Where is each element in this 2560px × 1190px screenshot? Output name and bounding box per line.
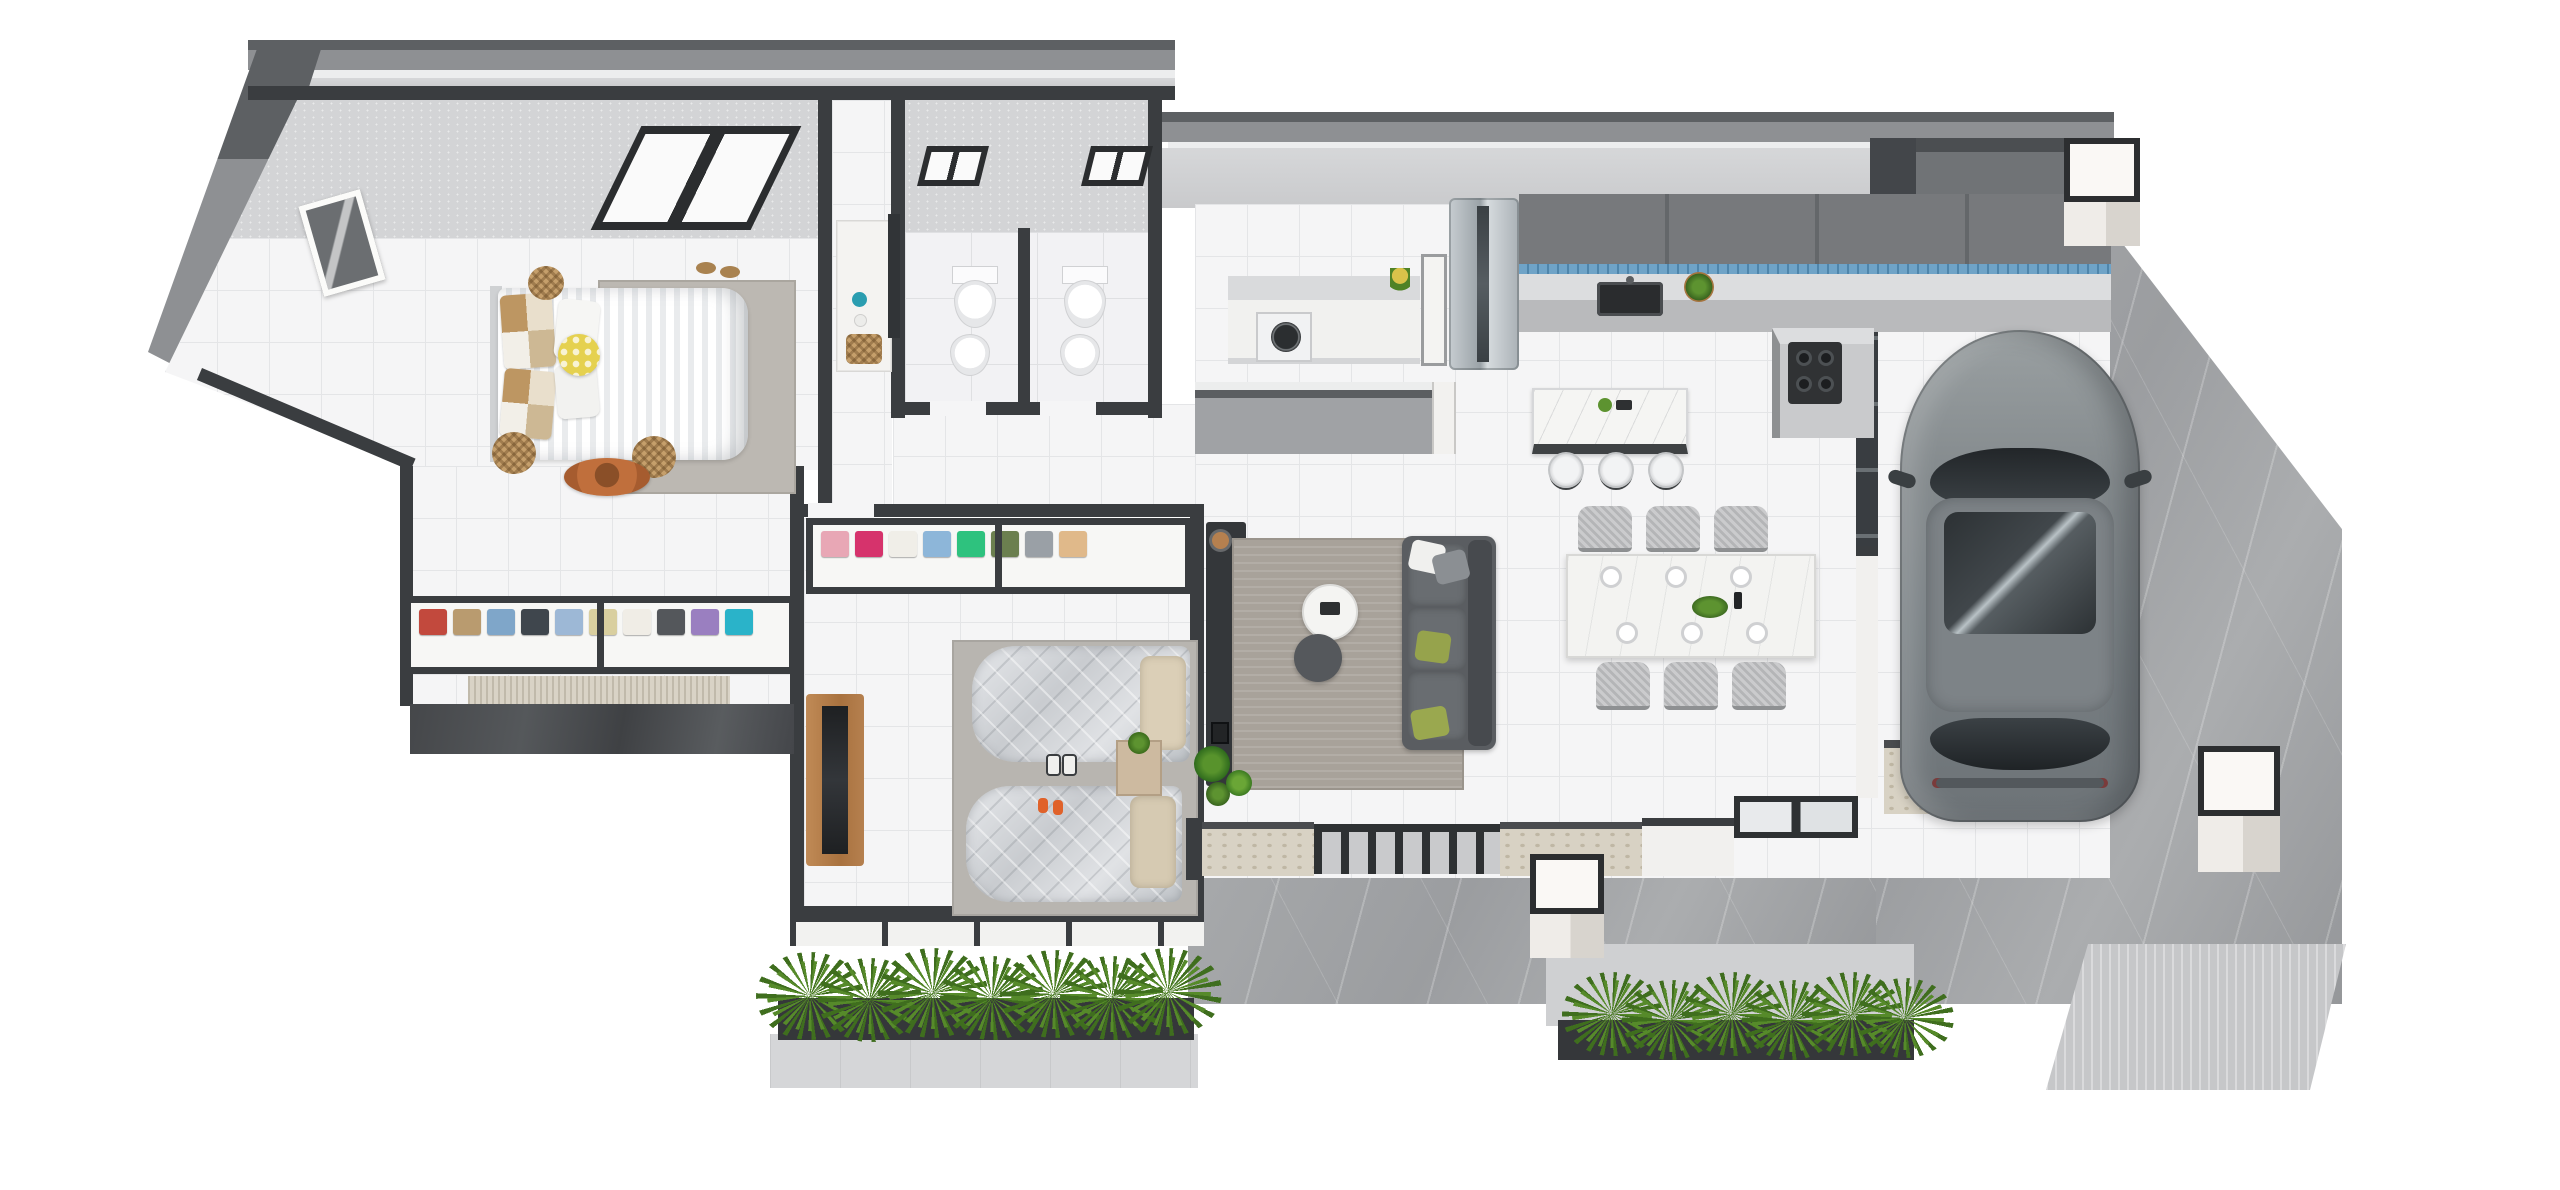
kids-wardrobe-unit <box>806 518 1192 594</box>
roof-band-left-wing <box>248 40 1175 70</box>
plate-5 <box>1681 622 1703 644</box>
street-apron <box>2046 944 2346 1090</box>
gas-hob <box>1788 342 1842 404</box>
closet-shelf-unit <box>404 596 796 674</box>
laundry-plant <box>1390 268 1410 294</box>
wicker-stool-top <box>528 266 564 300</box>
throw-pillow-green-2 <box>1410 705 1451 741</box>
half-wall-laundry <box>1195 382 1449 454</box>
grass-clump <box>1856 978 1954 1058</box>
car-sunroof <box>1944 512 2096 634</box>
coffee-table-tray <box>1320 602 1340 615</box>
island-breakfast-bar <box>1532 388 1688 454</box>
kitchen-backsplash-blue <box>1519 264 2111 274</box>
counter-plant <box>1684 272 1714 302</box>
washing-machine <box>1256 312 1312 362</box>
light-pillar-driveway-top <box>2198 746 2280 816</box>
roof-parapet-left <box>254 70 1175 78</box>
bar-stool-3 <box>1648 452 1684 488</box>
kitchen-upper-cabinets <box>1519 194 2111 274</box>
entry-corner-post <box>1186 818 1202 880</box>
toilet-2 <box>1056 266 1112 328</box>
closet-marble-step <box>410 704 794 754</box>
plate-3 <box>1730 566 1752 588</box>
candle-lantern <box>1211 722 1229 744</box>
entry-gate <box>1314 824 1500 874</box>
coffee-table-dark <box>1294 634 1342 682</box>
bar-stool-1 <box>1548 452 1584 488</box>
closet-divider <box>597 603 604 667</box>
centerpiece-green <box>1692 596 1728 618</box>
orange-slipper-2 <box>1053 800 1063 815</box>
hob-burner-3 <box>1796 376 1812 392</box>
patchwork-pillow-2 <box>499 368 557 440</box>
sneaker-2 <box>1062 754 1077 776</box>
washer-door <box>1271 322 1301 352</box>
light-pillar-driveway-body <box>2198 816 2280 872</box>
wine-bottle <box>1734 592 1742 609</box>
hob-burner-1 <box>1796 350 1812 366</box>
sun-hat <box>564 458 650 496</box>
plate-6 <box>1746 622 1768 644</box>
kitchen-faucet <box>1626 276 1634 284</box>
bath-door-opening-2 <box>1040 401 1096 416</box>
sliding-glass-door <box>1734 796 1858 838</box>
nightstand-plant <box>1128 732 1150 754</box>
toilet-1 <box>946 266 1002 328</box>
yellow-dot-cushion <box>558 334 600 376</box>
bathroom1-window-icon <box>917 146 989 186</box>
bathroom2-window-icon <box>1081 146 1153 186</box>
island-decor-plate <box>1616 400 1632 410</box>
wall-bath-partition <box>1018 228 1030 404</box>
light-pillar-porch-body <box>1530 914 1604 958</box>
porch-plant-small <box>1226 770 1252 796</box>
slipper-1 <box>696 262 716 274</box>
sofa-backrest <box>1468 540 1492 746</box>
table-lamp <box>1212 532 1229 549</box>
kids-wardrobe-divider <box>995 525 1002 587</box>
plate-1 <box>1600 566 1622 588</box>
plate-4 <box>1616 622 1638 644</box>
wall-right-lower <box>1856 546 1878 798</box>
porch-plant-large <box>1194 746 1230 782</box>
vanity-cup <box>854 314 867 327</box>
light-pillar-garage-body <box>2064 202 2140 246</box>
dining-chair-top-3 <box>1714 506 1768 552</box>
dining-chair-top-2 <box>1646 506 1700 552</box>
kitchen-sink <box>1597 282 1663 316</box>
dining-chair-top-1 <box>1578 506 1632 552</box>
grass-clump <box>1114 948 1222 1036</box>
orange-slipper-1 <box>1038 798 1048 813</box>
dining-chair-bottom-1 <box>1596 662 1650 710</box>
half-wall-pillar <box>1432 382 1456 454</box>
hob-burner-2 <box>1818 350 1834 366</box>
slipper-2 <box>720 266 740 278</box>
light-pillar-porch-top <box>1530 854 1604 914</box>
island-decor-sprig <box>1598 398 1612 412</box>
bar-stool-2 <box>1598 452 1634 488</box>
light-pillar-garage-top <box>2064 138 2140 202</box>
hob-burner-4 <box>1818 376 1834 392</box>
car <box>1900 330 2140 822</box>
plate-2 <box>1665 566 1687 588</box>
vanity-basket <box>846 334 882 364</box>
stone-fence-left <box>1202 822 1314 876</box>
dining-chair-bottom-3 <box>1732 662 1786 710</box>
dining-chair-bottom-2 <box>1664 662 1718 710</box>
wall-hall-left <box>818 100 832 508</box>
tv-screen <box>822 706 848 854</box>
vanity-mirror <box>888 214 900 338</box>
throw-pillow-green-1 <box>1414 630 1452 664</box>
bath-door-opening-1 <box>930 401 986 416</box>
kids-bed-2-pillow <box>1130 796 1176 888</box>
sneaker-1 <box>1046 754 1061 776</box>
open-door-panel <box>1421 254 1447 366</box>
entry-wall-white <box>1642 818 1734 876</box>
sofa <box>1402 536 1496 750</box>
fridge-handle <box>1477 206 1489 362</box>
walkway-slab <box>770 1034 1198 1088</box>
vanity-teal-decor <box>852 292 867 307</box>
dining-table <box>1566 554 1816 658</box>
patchwork-pillow-1 <box>499 292 556 369</box>
corridor-floor <box>893 404 1195 506</box>
kids-door-opening <box>808 503 874 518</box>
kids-bottom-wall-face <box>790 922 1204 946</box>
floor-plan-render <box>0 0 2560 1190</box>
wall-top-left-wing <box>248 86 1175 100</box>
refrigerator <box>1449 198 1519 370</box>
car-rear-lightbar <box>1936 778 2104 788</box>
wicker-stool-bottom <box>492 432 536 474</box>
